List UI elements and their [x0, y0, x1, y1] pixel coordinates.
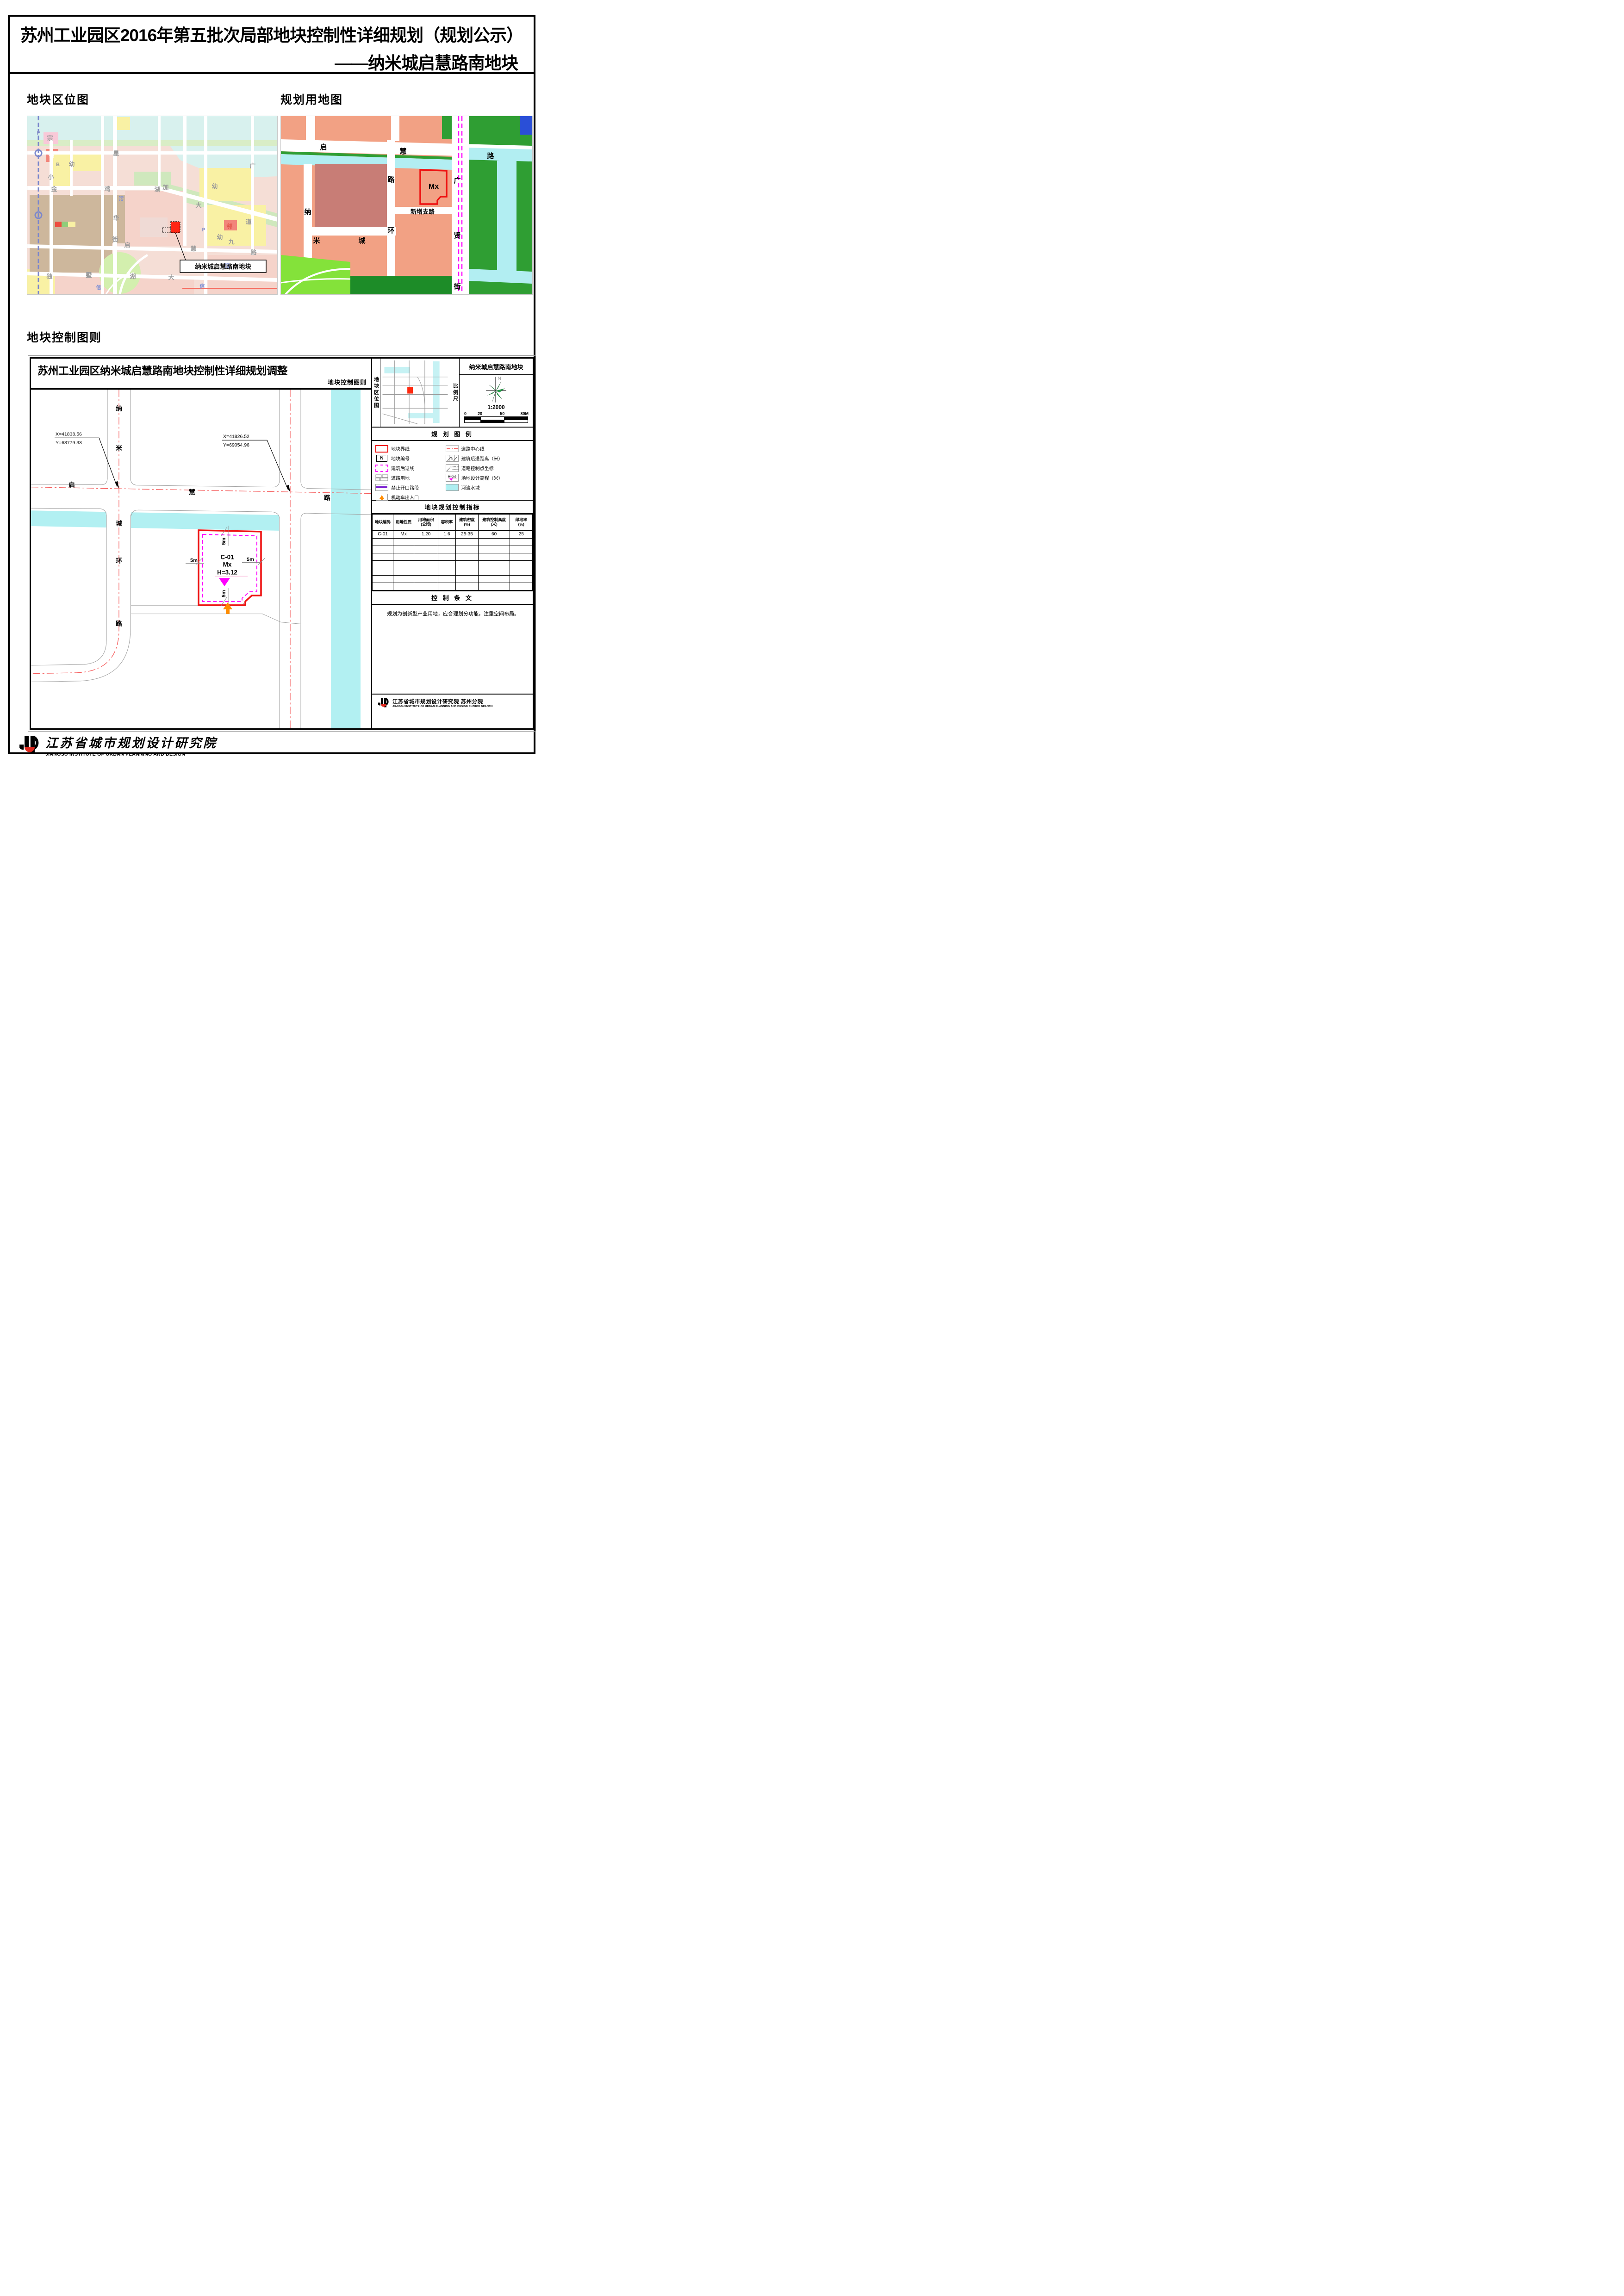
indicator-value: 1.6 — [438, 531, 455, 539]
map-label: 慧 — [189, 488, 195, 496]
empty-cell — [414, 553, 438, 561]
legend-label: 道路中心线 — [461, 445, 485, 452]
map-label: 独 — [46, 273, 52, 280]
sheet-title: 苏州工业园区纳米城启慧路南地块控制性详细规划调整 — [37, 362, 287, 378]
map-label: 幼 — [217, 234, 223, 241]
map-label: 金 — [50, 186, 57, 192]
empty-cell — [373, 546, 393, 553]
empty-cell — [393, 576, 414, 583]
legend-label: 禁止开口路段 — [391, 484, 419, 491]
empty-cell — [438, 568, 455, 576]
legend-label: 地块编号 — [391, 455, 410, 462]
panel-title: 纳米城启慧路南地块 — [460, 359, 533, 375]
scale-strip: 比例尺 — [451, 359, 460, 427]
map-label: 鸡 — [104, 186, 110, 192]
scale-strip-label: 比例尺 — [452, 383, 459, 403]
location-strip: 地块区位图 — [372, 359, 380, 427]
legend-label: 建筑后退距离（米） — [461, 455, 503, 462]
legend-label: 道路控制点坐标 — [461, 465, 494, 472]
control-sheet: 苏州工业园区纳米城启慧路南地块控制性详细规划调整 地块控制图则 — [30, 357, 534, 730]
map-label: 幼 — [68, 161, 75, 168]
subject-plot-marker — [171, 222, 180, 233]
map-label: 贤 — [454, 232, 460, 240]
footer-name-cn: 江苏省城市规划设计研究院 — [45, 733, 218, 751]
legend-item: 河流水域 — [445, 483, 531, 492]
empty-cell — [414, 561, 438, 568]
legend-item: 地块界线 — [375, 444, 445, 453]
landuse-map-canvas: 启慧路路纳米城环新增支路Mx广贤街 — [281, 116, 532, 294]
plot-use: Mx — [223, 561, 232, 568]
provisions-text: 规划为创新型产业用地，应合理划分功能，注重空间布局。 — [372, 605, 533, 694]
map-label: Mx — [429, 183, 439, 191]
empty-cell — [438, 576, 455, 583]
sidebar-panel: 纳米城启慧路南地块 N — [460, 359, 533, 427]
map-label: 湖 — [130, 273, 136, 280]
indicator-value: Mx — [393, 531, 414, 539]
legend-item: 道路用地 — [375, 473, 445, 483]
map-label: 邻 — [226, 223, 232, 230]
plot-elevation: H=3.12 — [217, 569, 237, 576]
legend-left-column: 地块界线N地块编号建筑后退线道路用地禁止开口路段机动车出入口 — [375, 444, 445, 502]
scalebar-tick: 80M — [520, 411, 529, 416]
page-subtitle: ——纳米城启慧路南地块 — [10, 49, 534, 74]
control-point-icon: X=186.342Y=463.666 — [445, 465, 459, 472]
sheet-sidebar: 地块区位图 比例尺 — [372, 359, 533, 728]
plot-number-icon: N — [375, 455, 389, 462]
empty-cell — [478, 546, 510, 553]
scalebar-tick: 50 — [500, 411, 504, 416]
empty-cell — [438, 553, 455, 561]
map-label: 启 — [124, 242, 130, 248]
legend-item: 道路中心线 — [445, 444, 531, 453]
legend-item: N地块编号 — [375, 453, 445, 463]
plot-boundary-icon — [375, 445, 389, 452]
plan-drawing: X=41838.56 Y=68779.33 X=41826.52 Y=69054… — [31, 390, 371, 728]
north-compass-icon: N — [480, 375, 512, 404]
empty-cell — [393, 561, 414, 568]
empty-cell — [393, 546, 414, 553]
location-strip-label: 地块区位图 — [373, 377, 380, 409]
map-label: 纳 — [304, 208, 311, 216]
setback-label-bottom: 5m — [221, 590, 227, 597]
empty-cell — [456, 576, 478, 583]
map-label: 启 — [68, 481, 75, 489]
landuse-map: 启慧路路纳米城环新增支路Mx广贤街 — [280, 116, 533, 295]
indicator-header: 建筑密度(%) — [456, 515, 478, 531]
setback-label-left: 5m — [190, 558, 198, 563]
map-label: 环 — [116, 557, 122, 564]
legend-item: 5建筑后退距离（米） — [445, 453, 531, 463]
map-label: 大 — [168, 274, 174, 281]
legend-item: X=186.342Y=463.666道路控制点坐标 — [445, 463, 531, 473]
empty-cell — [510, 539, 533, 546]
callout-label: 纳米城启慧路南地块 — [195, 263, 251, 270]
empty-cell — [373, 576, 393, 583]
river-icon — [445, 484, 459, 491]
empty-cell — [456, 553, 478, 561]
empty-cell — [373, 568, 393, 576]
map-label: 路 — [387, 175, 395, 184]
plan-column: 苏州工业园区纳米城启慧路南地块控制性详细规划调整 地块控制图则 — [31, 359, 372, 728]
mini-location-map — [380, 359, 451, 427]
map-label: 路 — [250, 249, 257, 256]
empty-cell — [414, 539, 438, 546]
institute-name-cn: 江苏省城市规划设计研究院 苏州分院 — [392, 698, 493, 705]
river — [31, 510, 106, 527]
map-label: 墅 — [86, 272, 92, 279]
indicator-header: 地块编码 — [373, 515, 393, 531]
map-label: 慧 — [190, 245, 196, 252]
indicator-value: 25-35 — [456, 531, 478, 539]
river — [331, 390, 361, 728]
map-label: 米 — [116, 444, 122, 452]
map-label: 广 — [454, 176, 460, 185]
svg-text:Y=463.666: Y=463.666 — [450, 468, 459, 471]
empty-cell — [373, 553, 393, 561]
map-label: 道 — [245, 218, 251, 225]
indicator-header: 用地性质 — [393, 515, 414, 531]
empty-cell — [478, 561, 510, 568]
empty-cell — [456, 539, 478, 546]
road-land-icon — [375, 474, 389, 481]
empty-cell — [438, 583, 455, 590]
empty-cell — [393, 568, 414, 576]
map-label: 启 — [320, 143, 327, 151]
coord2-y: Y=69054.96 — [223, 443, 249, 448]
map-label: 小 — [48, 174, 54, 180]
empty-cell — [478, 553, 510, 561]
scale-ratio: 1:2000 — [460, 404, 533, 410]
empty-cell — [373, 539, 393, 546]
map-label: 大 — [195, 202, 201, 209]
map-label: 路 — [324, 494, 331, 501]
svg-text:H=3.0: H=3.0 — [448, 475, 456, 478]
empty-cell — [478, 583, 510, 590]
no-access-icon — [375, 484, 389, 491]
empty-cell — [414, 546, 438, 553]
road-centerline-icon — [445, 445, 459, 452]
map-label: 路 — [116, 620, 123, 627]
indicator-header: 建筑控制高度(米) — [478, 515, 510, 531]
map-label: 街 — [453, 282, 460, 291]
legend-item: 建筑后退线 — [375, 463, 445, 473]
legend-section: 规 划 图 例 地块界线N地块编号建筑后退线道路用地禁止开口路段机动车出入口 道… — [372, 428, 533, 501]
empty-cell — [438, 546, 455, 553]
map-label: 广 — [249, 162, 255, 169]
location-map: 纳米城启慧路南地块 P宗邻B幼小金星鸡污湖加大道幼广邻P幼九华街启慧路独墅湖大信… — [27, 116, 278, 295]
footer-logo-icon — [19, 735, 41, 755]
empty-cell — [456, 583, 478, 590]
indicator-value: 1.20 — [414, 531, 438, 539]
scalebar-ticks: 0205080M — [464, 411, 528, 416]
mini-map-canvas — [380, 359, 451, 426]
map-label: 湖 — [154, 186, 160, 193]
institute-logo-icon — [378, 697, 390, 708]
empty-cell — [414, 576, 438, 583]
empty-cell — [510, 583, 533, 590]
map-label: B — [56, 162, 60, 168]
empty-cell — [478, 568, 510, 576]
legend-label: 道路用地 — [391, 474, 410, 481]
page-title: 苏州工业园区2016年第五批次局部地块控制性详细规划（规划公示） — [10, 21, 534, 46]
map-label: 信 — [96, 284, 101, 291]
svg-text:X=186.342: X=186.342 — [450, 465, 459, 468]
provisions-section: 控 制 条 文 规划为创新型产业用地，应合理划分功能，注重空间布局。 — [372, 591, 533, 695]
map-label: 九 — [228, 238, 234, 245]
map-label: 信 — [200, 283, 205, 289]
scalebar: 0205080M — [464, 411, 528, 423]
empty-cell — [456, 546, 478, 553]
map-label: 路 — [487, 152, 494, 160]
compass: N — [460, 375, 533, 404]
empty-cell — [510, 561, 533, 568]
empty-cell — [373, 561, 393, 568]
indicator-header: 容积率 — [438, 515, 455, 531]
empty-cell — [510, 553, 533, 561]
section-heading-location: 地块区位图 — [27, 91, 89, 107]
coord2-x: X=41826.52 — [223, 434, 249, 439]
institute-strip: 江苏省城市规划设计研究院 苏州分院 JIANGSU INSTITUTE OF U… — [372, 695, 533, 711]
map-label: 城 — [358, 236, 365, 245]
setback-line-icon — [375, 465, 389, 472]
legend-label: 机动车出入口 — [391, 494, 419, 501]
map-label: 宗 — [47, 135, 53, 142]
header: 苏州工业园区2016年第五批次局部地块控制性详细规划（规划公示） ——纳米城启慧… — [10, 21, 534, 74]
map-label: 星 — [113, 150, 119, 157]
legend-label: 地块界线 — [391, 445, 410, 452]
empty-cell — [478, 539, 510, 546]
site-elevation-icon: H=3.0 — [445, 474, 459, 481]
sheet-subtitle: 地块控制图则 — [328, 378, 367, 386]
scalebar-tick: 0 — [464, 411, 467, 416]
map-label: 加 — [162, 184, 168, 191]
map-label: 污 — [119, 195, 124, 202]
footer-logo: 江苏省城市规划设计研究院 JIANGSU INSTITUTE OF URBAN … — [19, 733, 218, 757]
svg-text:5: 5 — [451, 456, 453, 460]
map-label: P — [202, 227, 205, 233]
sidebar-location-block: 地块区位图 比例尺 — [372, 359, 533, 428]
footer-name-en: JIANGSU INSTITUTE OF URBAN PLANNING AND … — [45, 751, 218, 757]
section-heading-landuse: 规划用地图 — [280, 91, 343, 107]
map-label: 新增支路 — [411, 208, 435, 215]
setback-label-right: 5m — [247, 557, 254, 563]
legend-item: 禁止开口路段 — [375, 483, 445, 492]
map-label: 城 — [116, 520, 122, 527]
location-map-canvas: 纳米城启慧路南地块 P宗邻B幼小金星鸡污湖加大道幼广邻P幼九华街启慧路独墅湖大信… — [27, 116, 277, 294]
empty-cell — [438, 561, 455, 568]
legend-item: H=3.0场地设计高程（米） — [445, 473, 531, 483]
empty-cell — [510, 546, 533, 553]
map-label: 慧 — [399, 147, 406, 155]
empty-cell — [510, 568, 533, 576]
empty-cell — [414, 583, 438, 590]
empty-cell — [478, 576, 510, 583]
map-label: P — [37, 130, 40, 136]
river — [131, 512, 279, 531]
map-label: 幼 — [212, 183, 218, 190]
indicators-table: 地块编码用地性质用地面积(公顷)容积率建筑密度(%)建筑控制高度(米)绿地率(%… — [372, 514, 533, 590]
coord1-y: Y=68779.33 — [56, 441, 82, 446]
empty-cell — [456, 561, 478, 568]
sheet-title-block: 苏州工业园区纳米城启慧路南地块控制性详细规划调整 地块控制图则 — [31, 359, 371, 390]
setback-distance-icon: 5 — [445, 455, 459, 462]
indicator-header: 绿地率(%) — [510, 515, 533, 531]
legend-title: 规 划 图 例 — [372, 428, 533, 441]
indicator-value: 60 — [478, 531, 510, 539]
legend-right-column: 道路中心线5建筑后退距离（米）X=186.342Y=463.666道路控制点坐标… — [445, 444, 531, 502]
indicator-value: C-01 — [373, 531, 393, 539]
empty-cell — [510, 576, 533, 583]
indicator-value: 25 — [510, 531, 533, 539]
legend-body: 地块界线N地块编号建筑后退线道路用地禁止开口路段机动车出入口 道路中心线5建筑后… — [372, 441, 533, 503]
empty-cell — [414, 568, 438, 576]
map-label: 污 — [225, 262, 230, 269]
indicators-section: 地块规划控制指标 地块编码用地性质用地面积(公顷)容积率建筑密度(%)建筑控制高… — [372, 501, 533, 591]
map-label: 米 — [313, 236, 320, 245]
map-label: 街 — [112, 236, 118, 243]
section-heading-control: 地块控制图则 — [27, 329, 102, 345]
map-label: 邻 — [48, 152, 54, 159]
map-label: 纳 — [116, 405, 122, 412]
legend-label: 河流水域 — [461, 484, 480, 491]
provisions-title: 控 制 条 文 — [372, 591, 533, 605]
map-label: 华 — [113, 215, 119, 222]
empty-cell — [456, 568, 478, 576]
vehicle-entrance-icon — [375, 494, 389, 501]
legend-label: 场地设计高程（米） — [461, 474, 503, 481]
legend-label: 建筑后退线 — [391, 465, 414, 472]
scalebar-checker — [464, 416, 528, 423]
empty-cell — [393, 553, 414, 561]
map-label: 环 — [387, 227, 394, 235]
setback-label-top: 5m — [221, 538, 227, 545]
indicator-header: 用地面积(公顷) — [414, 515, 438, 531]
institute-name-en: JIANGSU INSTITUTE OF URBAN PLANNING AND … — [392, 705, 493, 708]
empty-cell — [393, 583, 414, 590]
scalebar-tick: 20 — [478, 411, 482, 416]
coord1-x: X=41838.56 — [56, 432, 82, 437]
plot-code: C-01 — [220, 554, 234, 561]
empty-cell — [393, 539, 414, 546]
empty-cell — [373, 583, 393, 590]
mini-map-plot — [407, 387, 413, 394]
empty-cell — [438, 539, 455, 546]
indicators-title: 地块规划控制指标 — [372, 501, 533, 514]
north-label: N — [498, 376, 501, 381]
